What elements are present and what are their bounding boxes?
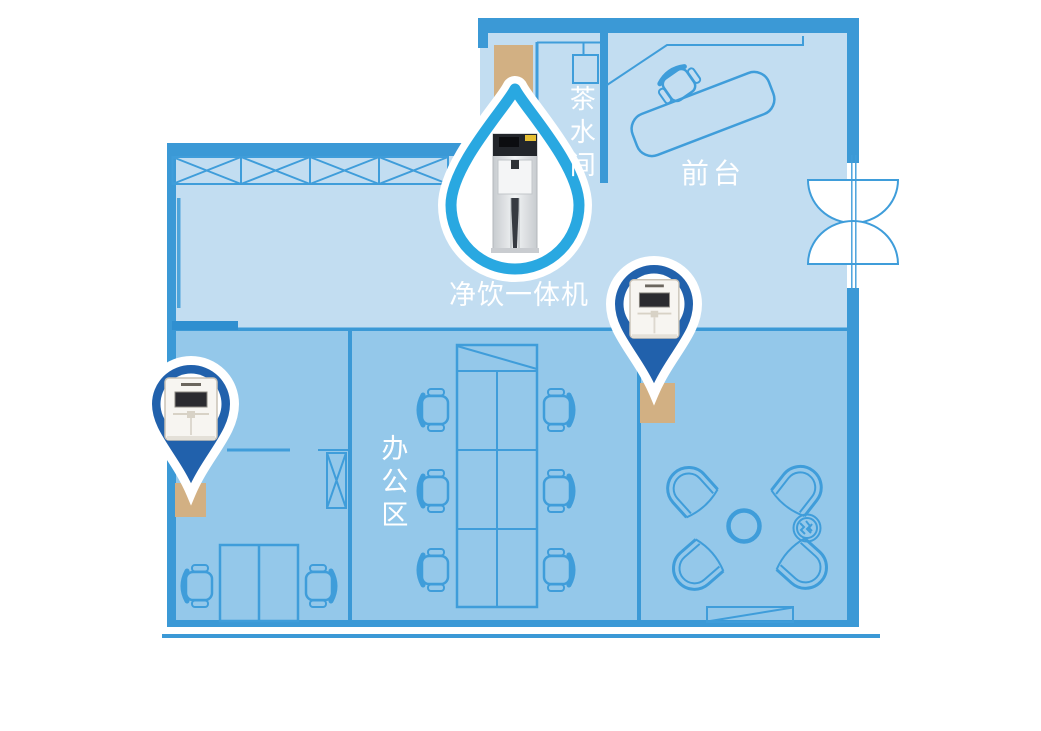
radiator bbox=[177, 198, 181, 308]
floor-plan-drawing bbox=[0, 0, 1041, 731]
countertop-dispenser-icon bbox=[630, 280, 679, 338]
floor-standing-dispenser-icon bbox=[491, 134, 539, 253]
plant-icon bbox=[794, 515, 821, 542]
office-area-label: 办公区 bbox=[376, 434, 408, 533]
countertop-dispenser-icon bbox=[165, 378, 217, 440]
dispenser-label: 净饮一体机 bbox=[449, 279, 589, 311]
reception-label: 前台 bbox=[681, 157, 745, 191]
tea-room-label: 茶水间 bbox=[565, 85, 596, 184]
office-floor-plan: 茶水间 前台 办公区 净饮一体机 bbox=[0, 0, 1041, 731]
